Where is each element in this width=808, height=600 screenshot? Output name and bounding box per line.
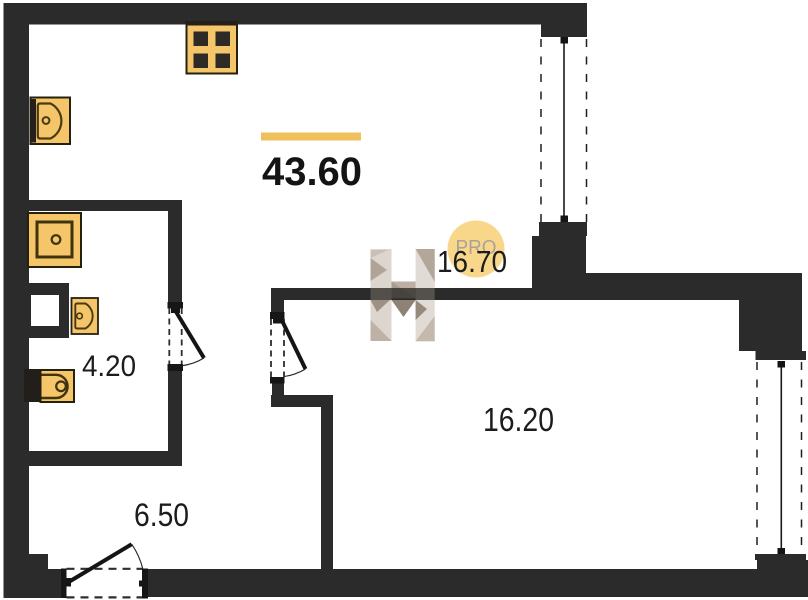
- svg-text:16.20: 16.20: [483, 401, 554, 438]
- svg-text:16.70: 16.70: [437, 244, 507, 279]
- svg-text:4.20: 4.20: [82, 350, 136, 383]
- svg-text:43.60: 43.60: [262, 150, 362, 194]
- svg-text:6.50: 6.50: [134, 497, 189, 533]
